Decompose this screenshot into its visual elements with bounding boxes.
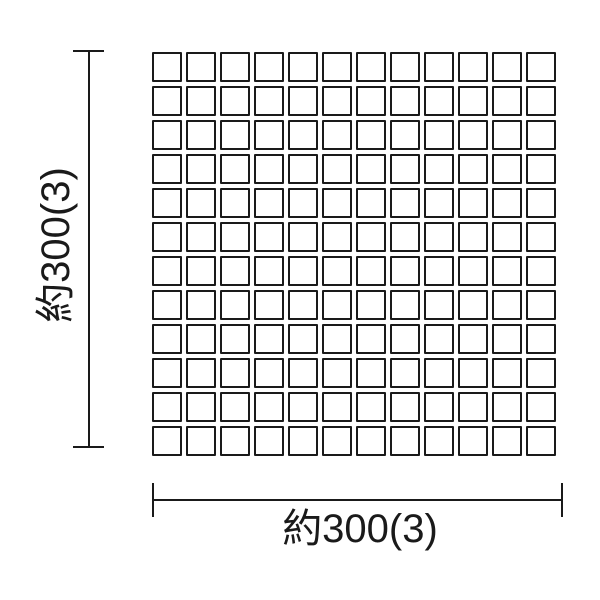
tile <box>526 324 556 354</box>
tile <box>322 358 352 388</box>
tile <box>186 52 216 82</box>
tile <box>220 290 250 320</box>
tile <box>526 120 556 150</box>
tile <box>254 324 284 354</box>
tile <box>458 154 488 184</box>
tile <box>186 188 216 218</box>
tile <box>322 154 352 184</box>
tile <box>288 290 318 320</box>
tile <box>492 86 522 116</box>
tile <box>356 426 386 456</box>
tile <box>492 120 522 150</box>
tile <box>322 222 352 252</box>
tile <box>390 358 420 388</box>
tile <box>424 154 454 184</box>
tile <box>492 426 522 456</box>
tile <box>152 290 182 320</box>
tile <box>288 222 318 252</box>
vertical-dimension-line <box>88 51 90 448</box>
tile <box>390 188 420 218</box>
tile <box>288 188 318 218</box>
tile <box>220 392 250 422</box>
tile <box>458 392 488 422</box>
tile <box>526 222 556 252</box>
vertical-dimension-tick-bottom <box>73 446 104 448</box>
tile <box>390 222 420 252</box>
tile <box>186 154 216 184</box>
tile <box>220 426 250 456</box>
tile <box>458 290 488 320</box>
tile <box>424 324 454 354</box>
tile <box>492 52 522 82</box>
tile <box>424 52 454 82</box>
tile <box>526 154 556 184</box>
tile <box>254 290 284 320</box>
tile <box>492 392 522 422</box>
tile <box>526 52 556 82</box>
tile <box>220 188 250 218</box>
tile <box>254 426 284 456</box>
tile <box>288 358 318 388</box>
tile <box>356 86 386 116</box>
horizontal-dimension-tick-right <box>561 483 563 517</box>
tile <box>322 188 352 218</box>
tile <box>390 256 420 286</box>
tile <box>424 120 454 150</box>
tile <box>254 86 284 116</box>
tile <box>186 392 216 422</box>
tile <box>526 256 556 286</box>
tile <box>288 154 318 184</box>
tile <box>390 52 420 82</box>
tile <box>288 324 318 354</box>
tile <box>356 188 386 218</box>
tile <box>288 120 318 150</box>
tile <box>322 120 352 150</box>
tile <box>458 86 488 116</box>
tile <box>356 222 386 252</box>
tile <box>458 188 488 218</box>
tile <box>220 86 250 116</box>
tile <box>390 426 420 456</box>
tile <box>288 256 318 286</box>
horizontal-dimension-line <box>153 499 563 501</box>
tile <box>492 154 522 184</box>
tile <box>152 86 182 116</box>
tile <box>186 290 216 320</box>
tile-sheet-diagram: 約300(3) 約300(3) <box>0 0 600 600</box>
tile <box>288 392 318 422</box>
tile <box>356 358 386 388</box>
tile <box>254 222 284 252</box>
tile <box>186 86 216 116</box>
tile <box>492 358 522 388</box>
tile <box>322 52 352 82</box>
tile <box>288 52 318 82</box>
tile <box>390 392 420 422</box>
tile <box>424 86 454 116</box>
tile <box>254 358 284 388</box>
tile <box>526 188 556 218</box>
tile <box>254 188 284 218</box>
tile <box>356 256 386 286</box>
tile <box>424 392 454 422</box>
tile <box>526 290 556 320</box>
tile <box>424 290 454 320</box>
tile <box>322 256 352 286</box>
tile <box>186 324 216 354</box>
tile <box>492 324 522 354</box>
tile <box>220 324 250 354</box>
tile <box>220 358 250 388</box>
tile <box>356 290 386 320</box>
tile <box>458 358 488 388</box>
tile <box>390 120 420 150</box>
tile <box>492 188 522 218</box>
horizontal-dimension-label: 約300(3) <box>282 505 438 553</box>
tile <box>152 52 182 82</box>
tile <box>322 290 352 320</box>
tile <box>152 358 182 388</box>
tile <box>186 120 216 150</box>
tile <box>288 426 318 456</box>
tile <box>152 324 182 354</box>
tile <box>254 120 284 150</box>
tile <box>254 52 284 82</box>
tile <box>390 154 420 184</box>
tile <box>390 290 420 320</box>
tile <box>458 426 488 456</box>
tile <box>424 188 454 218</box>
tile <box>356 154 386 184</box>
tile-grid <box>152 52 556 456</box>
vertical-dimension-label: 約300(3) <box>36 167 76 323</box>
tile <box>254 256 284 286</box>
tile <box>526 86 556 116</box>
tile <box>356 324 386 354</box>
tile <box>322 392 352 422</box>
tile <box>458 256 488 286</box>
tile <box>458 52 488 82</box>
tile <box>390 324 420 354</box>
tile <box>186 426 216 456</box>
tile <box>220 222 250 252</box>
tile <box>322 86 352 116</box>
tile <box>152 426 182 456</box>
tile <box>356 52 386 82</box>
tile <box>254 154 284 184</box>
vertical-dimension-tick-top <box>73 50 104 52</box>
tile <box>220 154 250 184</box>
tile <box>424 426 454 456</box>
tile <box>186 222 216 252</box>
tile <box>220 120 250 150</box>
tile <box>220 52 250 82</box>
tile <box>186 256 216 286</box>
tile <box>526 392 556 422</box>
tile <box>152 188 182 218</box>
tile <box>152 222 182 252</box>
horizontal-dimension-tick-left <box>152 483 154 517</box>
tile <box>458 120 488 150</box>
tile <box>288 86 318 116</box>
tile <box>152 256 182 286</box>
tile <box>458 324 488 354</box>
tile <box>220 256 250 286</box>
tile <box>526 426 556 456</box>
tile <box>254 392 284 422</box>
tile <box>186 358 216 388</box>
tile <box>424 256 454 286</box>
tile <box>458 222 488 252</box>
tile <box>424 358 454 388</box>
tile <box>390 86 420 116</box>
tile <box>526 358 556 388</box>
tile <box>356 120 386 150</box>
tile <box>492 290 522 320</box>
tile <box>492 256 522 286</box>
tile <box>322 324 352 354</box>
tile <box>424 222 454 252</box>
tile <box>152 392 182 422</box>
tile <box>322 426 352 456</box>
tile <box>152 120 182 150</box>
tile <box>152 154 182 184</box>
tile <box>492 222 522 252</box>
tile <box>356 392 386 422</box>
